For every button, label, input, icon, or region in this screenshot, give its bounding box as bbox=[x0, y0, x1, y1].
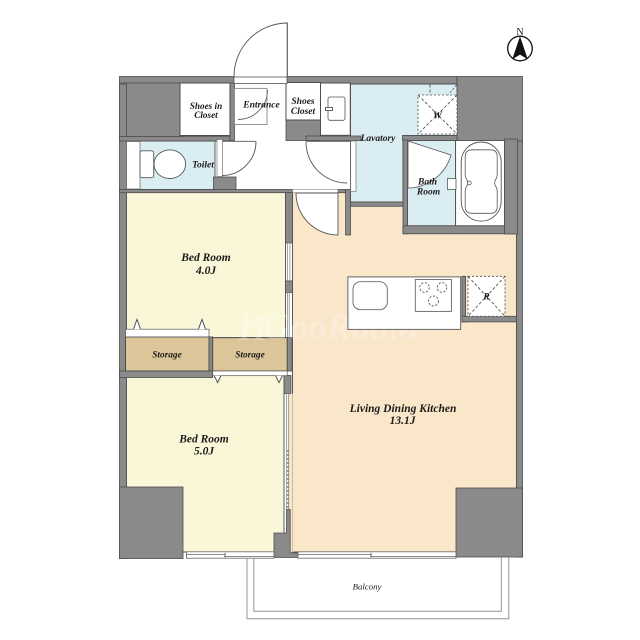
svg-text:13.1J: 13.1J bbox=[390, 415, 417, 427]
svg-text:Entrance: Entrance bbox=[242, 101, 280, 111]
svg-text:Bath: Bath bbox=[417, 178, 437, 188]
svg-text:Bed Room: Bed Room bbox=[178, 434, 229, 446]
svg-text:Closet: Closet bbox=[291, 107, 316, 117]
svg-text:W: W bbox=[433, 111, 443, 122]
svg-text:Balcony: Balcony bbox=[353, 582, 382, 592]
svg-text:Living Dining Kitchen: Living Dining Kitchen bbox=[349, 403, 457, 415]
svg-text:Bed Room: Bed Room bbox=[180, 252, 231, 264]
svg-text:N: N bbox=[516, 27, 523, 38]
svg-text:Shoes: Shoes bbox=[291, 97, 315, 107]
svg-text:Storage: Storage bbox=[152, 351, 181, 361]
svg-text:Toilet: Toilet bbox=[192, 161, 214, 171]
svg-text:Storage: Storage bbox=[235, 351, 264, 361]
svg-text:Room: Room bbox=[416, 188, 440, 198]
svg-text:5.0J: 5.0J bbox=[194, 446, 215, 458]
svg-text:Closet: Closet bbox=[194, 110, 218, 120]
svg-text:4.0J: 4.0J bbox=[195, 265, 217, 277]
svg-text:R: R bbox=[482, 293, 489, 303]
svg-text:Lavatory: Lavatory bbox=[360, 134, 397, 144]
